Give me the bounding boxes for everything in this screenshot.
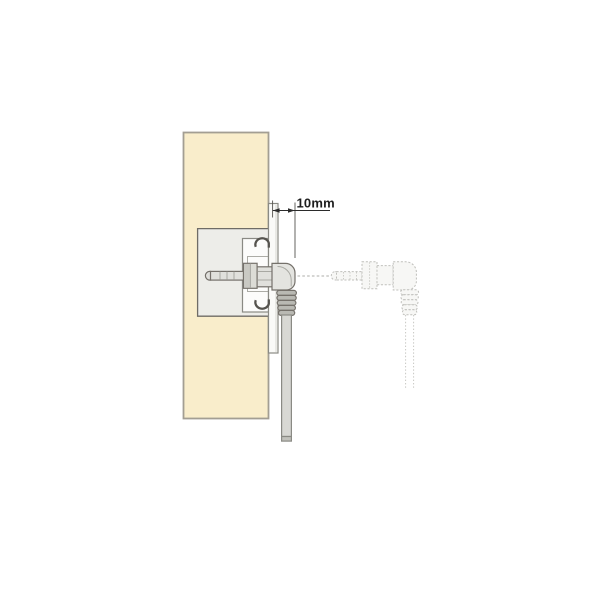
cable [282, 315, 292, 441]
ghost-rib [402, 310, 416, 315]
cable-end-cap [282, 437, 292, 442]
rib [277, 295, 296, 300]
ghost-rib [401, 295, 418, 300]
ghost-plug-body [377, 266, 393, 285]
ghost-cable [406, 315, 414, 388]
ghost-rib [401, 290, 419, 295]
dimension-annotation: 10mm [273, 196, 335, 259]
rib [277, 300, 296, 305]
plug-body-block [257, 267, 272, 287]
rib [277, 290, 297, 295]
strain-relief [277, 290, 297, 315]
ghost-elbow-body [393, 262, 416, 290]
ghost-strain-relief [401, 290, 419, 315]
diagram-canvas: 10mm [0, 0, 600, 600]
collar-nut [244, 263, 258, 288]
arrow-right-icon [288, 208, 295, 213]
collar-nut-shade [244, 264, 250, 288]
ghost-rib [402, 305, 418, 310]
cable-run [282, 315, 292, 437]
dimension-label: 10mm [297, 196, 335, 211]
jack-plug [205, 271, 243, 280]
ghost-connector [331, 262, 418, 388]
ghost-rib [401, 300, 418, 305]
ghost-plug-shaft [337, 272, 363, 280]
rib [278, 305, 296, 310]
elbow-connector [272, 263, 295, 290]
instruction-diagram: 10mm [0, 0, 600, 600]
plug-body [257, 267, 272, 287]
